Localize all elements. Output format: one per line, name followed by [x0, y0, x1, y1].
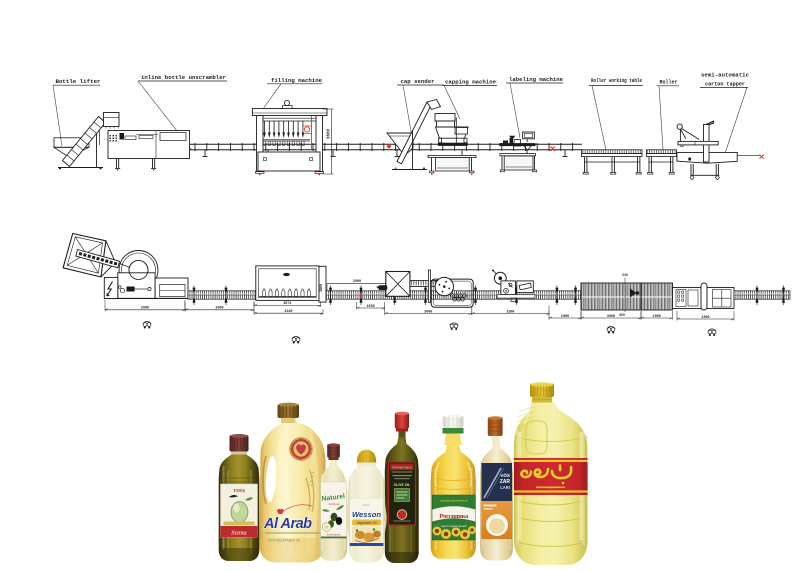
svg-text:cap sender: cap sender	[401, 78, 435, 85]
svg-text:inline bottle unscrambler: inline bottle unscrambler	[141, 74, 226, 81]
svg-text:Россиянка: Россиянка	[440, 513, 469, 520]
svg-text:3000: 3000	[215, 307, 223, 311]
svg-text:630: 630	[622, 273, 628, 277]
svg-text:1000: 1000	[561, 315, 569, 319]
svg-text:FRANKONIA: FRANKONIA	[392, 466, 411, 470]
svg-text:carton tapper: carton tapper	[705, 80, 745, 87]
svg-text:Bottle lifter: Bottle lifter	[56, 78, 101, 85]
svg-text:Pure: Pure	[362, 503, 370, 507]
svg-text:3000: 3000	[607, 315, 615, 319]
svg-text:3000: 3000	[320, 284, 324, 292]
svg-text:semi-automatic: semi-automatic	[701, 71, 749, 78]
svg-text:LARI: LARI	[500, 485, 510, 490]
svg-text:Sızma Zeytin: Sızma Zeytin	[327, 534, 342, 537]
svg-text:Wesson: Wesson	[352, 510, 381, 519]
svg-text:Roller: Roller	[660, 78, 678, 85]
svg-text:Zeytinyağı: Zeytinyağı	[329, 503, 340, 506]
svg-text:VÖS: VÖS	[500, 472, 510, 478]
svg-text:Al Arab: Al Arab	[263, 516, 312, 532]
svg-text:OLIVE OIL: OLIVE OIL	[394, 483, 411, 487]
svg-text:2600: 2600	[141, 307, 149, 311]
svg-text:3000: 3000	[328, 128, 332, 139]
svg-text:1900: 1900	[701, 316, 709, 320]
svg-text:filling machine: filling machine	[271, 77, 322, 84]
svg-text:Vegetable Oil: Vegetable Oil	[356, 521, 376, 525]
svg-text:capping machine: capping machine	[445, 78, 496, 85]
svg-text:масло подсолнечное: масло подсолнечное	[441, 525, 467, 528]
svg-text:Sızma: Sızma	[231, 530, 247, 537]
svg-text:labeling machine: labeling machine	[509, 76, 563, 83]
svg-text:3000: 3000	[424, 310, 432, 314]
svg-text:2440: 2440	[284, 310, 292, 314]
svg-text:нерафинированное: нерафинированное	[440, 499, 468, 503]
svg-text:3074: 3074	[283, 302, 291, 306]
svg-text:450: 450	[619, 313, 625, 317]
svg-text:1000: 1000	[653, 315, 661, 319]
svg-text:3900: 3900	[353, 280, 361, 284]
svg-text:1500: 1500	[367, 305, 375, 309]
svg-text:TARİŞ: TARİŞ	[233, 488, 246, 493]
svg-text:Roller working table: Roller working table	[591, 77, 642, 84]
svg-text:2300: 2300	[506, 310, 514, 314]
